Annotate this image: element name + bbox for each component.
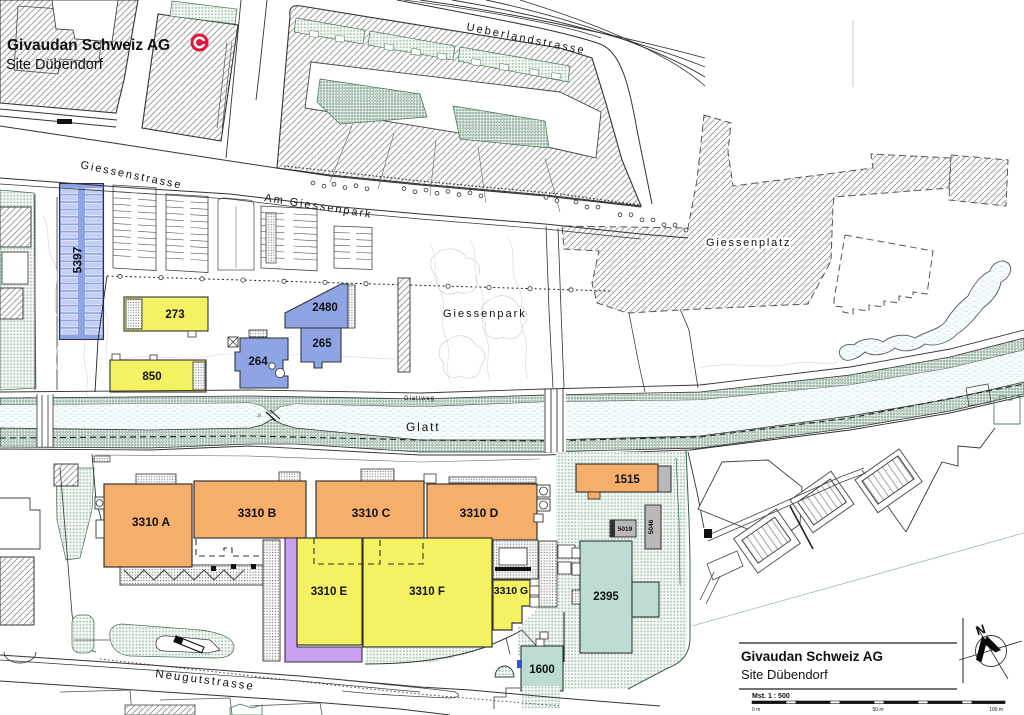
svg-text:1600: 1600 <box>529 664 555 676</box>
svg-text:2l: 2l <box>257 413 261 418</box>
svg-text:2395: 2395 <box>593 591 619 603</box>
svg-text:273: 273 <box>165 309 184 321</box>
svg-text:265: 265 <box>312 338 332 350</box>
svg-text:264: 264 <box>248 356 268 368</box>
svg-text:3310 E: 3310 E <box>311 586 348 598</box>
svg-text:100 m: 100 m <box>989 707 1003 713</box>
svg-text:5046: 5046 <box>648 519 655 534</box>
svg-text:Site Dübendorf: Site Dübendorf <box>741 667 828 682</box>
svg-text:50 m: 50 m <box>872 707 883 713</box>
svg-text:2480: 2480 <box>312 302 338 314</box>
svg-text:850: 850 <box>142 371 161 383</box>
svg-text:3310 G: 3310 G <box>494 585 528 597</box>
svg-text:5019: 5019 <box>618 526 633 533</box>
svg-text:1515: 1515 <box>614 474 640 486</box>
svg-text:0 m: 0 m <box>752 707 760 713</box>
svg-text:3310 D: 3310 D <box>460 506 499 520</box>
svg-text:3310 A: 3310 A <box>132 515 171 529</box>
svg-text:Mst. 1 : 500: Mst. 1 : 500 <box>752 693 790 700</box>
svg-text:3310 F: 3310 F <box>409 586 445 598</box>
svg-text:Giessenpark: Giessenpark <box>443 308 527 320</box>
svg-text:3310 C: 3310 C <box>352 506 391 520</box>
svg-text:5397: 5397 <box>71 246 85 273</box>
svg-text:3310 B: 3310 B <box>238 506 277 520</box>
svg-text:Glattweg: Glattweg <box>404 396 435 402</box>
svg-text:Giessenplatz: Giessenplatz <box>706 237 791 249</box>
svg-text:Givaudan Schweiz AG: Givaudan Schweiz AG <box>741 649 883 664</box>
svg-text:Site Dübendorf: Site Dübendorf <box>6 57 104 73</box>
svg-text:Givaudan Schweiz AG: Givaudan Schweiz AG <box>7 37 170 54</box>
svg-text:Glatt: Glatt <box>406 420 440 434</box>
